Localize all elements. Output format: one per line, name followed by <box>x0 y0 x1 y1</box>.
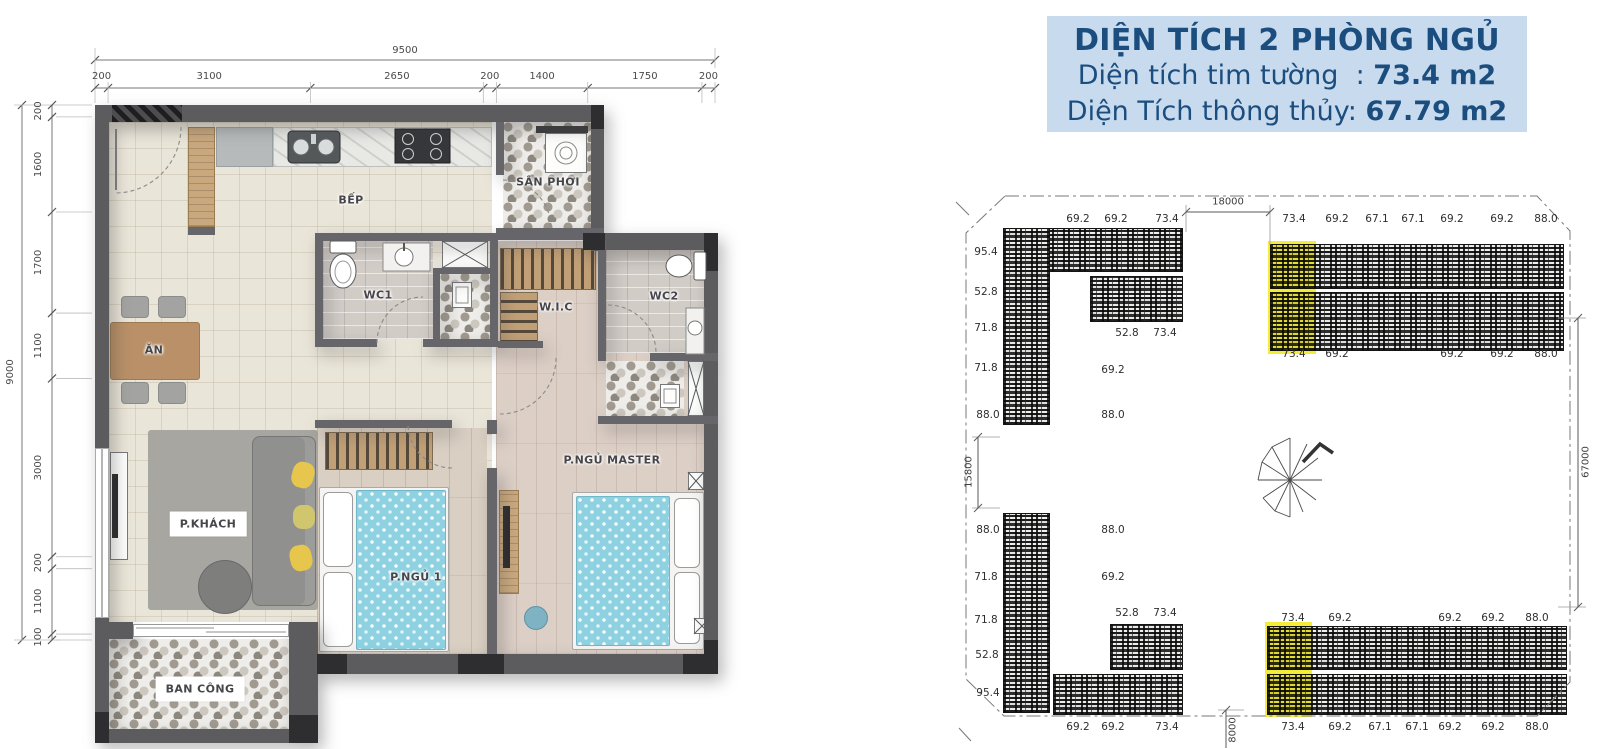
unit-area-label: 52.8 <box>1115 607 1138 619</box>
unit-area-label: 69.2 <box>1101 571 1124 583</box>
dim-label: 1100 <box>33 589 44 614</box>
page: 9500200310026502001400175020090002001600… <box>0 0 1600 749</box>
dim-label: 9000 <box>5 359 16 384</box>
site-dim-label: 67000 <box>1581 446 1592 478</box>
master-bed-blanket <box>576 496 670 646</box>
unit-area-label: 69.2 <box>1066 721 1089 733</box>
wic-wardrobe-rail <box>500 248 596 290</box>
unit-area-label: 52.8 <box>975 649 998 661</box>
unit-area-label: 88.0 <box>976 524 999 536</box>
bath-appliance <box>660 384 680 408</box>
unit-area-label: 88.0 <box>1101 524 1124 536</box>
living-window-mullion <box>101 448 103 618</box>
unit-area-label: 95.4 <box>974 246 997 258</box>
dim-label: 1700 <box>33 250 44 275</box>
unit-area-label: 69.2 <box>1481 612 1504 624</box>
highlighted-unit-top <box>1268 241 1316 354</box>
wc1-floor <box>323 241 433 339</box>
tall-cabinet <box>188 127 215 227</box>
building-wing <box>1267 674 1567 715</box>
building-wing <box>1053 674 1183 715</box>
master-bed-pillow <box>674 498 700 568</box>
unit-area-label: 69.2 <box>1440 213 1463 225</box>
unit-area-label: 69.2 <box>1490 213 1513 225</box>
unit-area-label: 71.8 <box>974 614 997 626</box>
dim-label: 200 <box>480 71 499 82</box>
building-wing <box>1267 626 1567 670</box>
unit-area-label: 73.4 <box>1282 213 1305 225</box>
net-area-value: 67.79 m2 <box>1365 96 1507 127</box>
vent-bar <box>536 126 588 133</box>
dining-chair <box>158 296 186 318</box>
balcony-floor <box>109 639 289 729</box>
building-wing <box>1110 624 1183 670</box>
info-row-gross-area: Diện tích tim tường : 73.4 m2 <box>1047 58 1527 94</box>
unit-area-label: 67.1 <box>1368 721 1391 733</box>
unit-area-label: 69.2 <box>1066 213 1089 225</box>
dim-label: 200 <box>92 71 111 82</box>
building-wing <box>1003 228 1050 425</box>
dim-label: 200 <box>699 71 718 82</box>
dim-label: 1750 <box>632 71 657 82</box>
unit-area-label: 73.4 <box>1153 607 1176 619</box>
unit-area-label: 88.0 <box>1525 612 1548 624</box>
unit-area-label: 67.1 <box>1365 213 1388 225</box>
wc1-laundry-box <box>452 282 472 308</box>
net-area-label: Diện Tích thông thủy: <box>1067 96 1366 127</box>
xbox-shaft-top <box>442 241 488 268</box>
dim-label: 9500 <box>392 45 417 56</box>
area-info-box: DIỆN TÍCH 2 PHÒNG NGỦ Diện tích tim tườn… <box>1047 16 1527 132</box>
unit-area-label: 88.0 <box>1525 721 1548 733</box>
wc2-floor <box>606 250 704 353</box>
unit-area-label: 88.0 <box>1534 213 1557 225</box>
building-wing <box>1003 513 1050 713</box>
building-wing <box>1090 276 1183 322</box>
compass-icon <box>1258 438 1333 517</box>
dim-label: 3100 <box>196 71 221 82</box>
unit-area-label: 73.4 <box>1155 213 1178 225</box>
gross-area-label: Diện tích tim tường : <box>1078 60 1374 91</box>
master-tv <box>503 506 510 568</box>
site-dim-label: 18000 <box>1212 197 1244 208</box>
unit-area-label: 73.4 <box>1153 327 1176 339</box>
unit-area-label: 71.8 <box>974 322 997 334</box>
unit-area-label: 69.2 <box>1481 721 1504 733</box>
sofa-pillow-olive <box>293 505 315 529</box>
bedroom1-wardrobe <box>325 432 433 470</box>
washer-drying-yard <box>545 133 587 173</box>
upper-cabinet <box>216 127 273 167</box>
unit-area-label: 71.8 <box>974 362 997 374</box>
boundary-corner-ticks <box>956 202 971 741</box>
unit-area-label: 69.2 <box>1101 721 1124 733</box>
bed1-pillow <box>323 492 353 567</box>
dim-label: 1400 <box>529 71 554 82</box>
bed1-blanket <box>356 490 446 650</box>
unit-area-label: 69.2 <box>1328 721 1351 733</box>
dining-table <box>110 322 200 380</box>
unit-area-label: 52.8 <box>1115 327 1138 339</box>
dim-label: 200 <box>33 553 44 572</box>
kitchen-counter <box>273 127 492 167</box>
master-stool <box>524 606 548 630</box>
dim-label: 1100 <box>33 333 44 358</box>
unit-area-label: 73.4 <box>1281 721 1304 733</box>
unit-area-label: 88.0 <box>1101 409 1124 421</box>
site-dim-label: 15800 <box>964 456 975 488</box>
unit-area-label: 67.1 <box>1405 721 1428 733</box>
unit-area-label: 71.8 <box>974 571 997 583</box>
unit-area-label: 69.2 <box>1438 612 1461 624</box>
wic-shelf-left <box>500 292 538 344</box>
unit-area-label: 67.1 <box>1401 213 1424 225</box>
dim-label: 3000 <box>33 455 44 480</box>
site-dim-label: 8000 <box>1228 717 1239 742</box>
tv <box>112 474 118 538</box>
nightstand <box>694 618 710 634</box>
unit-area-label: 69.2 <box>1101 364 1124 376</box>
dining-chair <box>158 382 186 404</box>
unit-area-label: 88.0 <box>976 409 999 421</box>
unit-area-label: 95.4 <box>976 687 999 699</box>
balcony-sliding-door <box>133 624 289 637</box>
dining-chair <box>121 296 149 318</box>
ottoman <box>198 560 252 614</box>
unit-area-label: 69.2 <box>1438 721 1461 733</box>
unit-area-label: 52.8 <box>974 286 997 298</box>
dim-label: 2650 <box>384 71 409 82</box>
unit-area-label: 73.4 <box>1155 721 1178 733</box>
unit-area-label: 69.2 <box>1104 213 1127 225</box>
unit-area-label: 69.2 <box>1325 213 1348 225</box>
nightstand <box>688 472 704 490</box>
dining-chair <box>121 382 149 404</box>
gross-area-value: 73.4 m2 <box>1373 60 1496 91</box>
cabinet-wall-stub <box>188 227 215 235</box>
highlighted-unit-bottom <box>1265 622 1312 717</box>
dim-label: 1600 <box>33 152 44 177</box>
dim-label: 200 <box>33 101 44 120</box>
unit-area-label: 69.2 <box>1328 612 1351 624</box>
dim-label: 100 <box>33 627 44 646</box>
info-row-net-area: Diện Tích thông thủy: 67.79 m2 <box>1047 94 1527 130</box>
shaft-right <box>688 361 704 416</box>
bed1-pillow <box>323 572 353 647</box>
info-title: DIỆN TÍCH 2 PHÒNG NGỦ <box>1047 23 1527 58</box>
